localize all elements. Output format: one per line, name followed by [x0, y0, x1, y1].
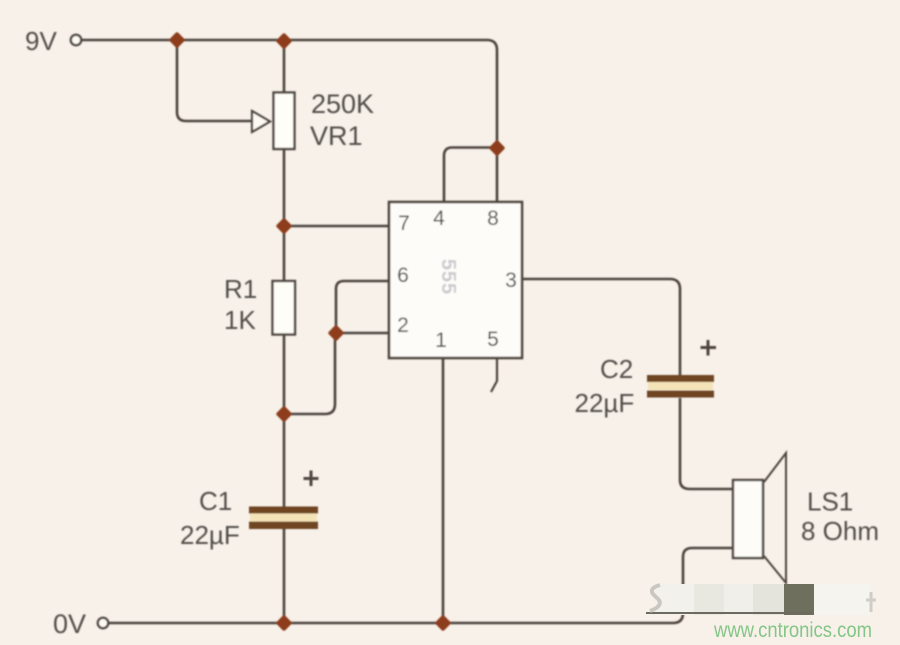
svg-text:1K: 1K — [224, 305, 256, 335]
svg-text:0V: 0V — [53, 609, 86, 639]
svg-text:7: 7 — [398, 212, 410, 235]
svg-text:5: 5 — [487, 328, 499, 351]
svg-text:9V: 9V — [25, 26, 57, 56]
svg-text:C2: C2 — [600, 354, 633, 384]
svg-text:VR1: VR1 — [310, 121, 363, 151]
svg-text:22µF: 22µF — [180, 520, 240, 550]
svg-text:8 Ohm: 8 Ohm — [801, 516, 879, 546]
svg-text:4: 4 — [433, 207, 445, 230]
svg-text:250K: 250K — [311, 89, 374, 119]
svg-text:1: 1 — [435, 329, 447, 352]
svg-text:R1: R1 — [224, 274, 257, 304]
svg-text:6: 6 — [397, 264, 409, 287]
svg-text:LS1: LS1 — [807, 487, 853, 517]
svg-text:3: 3 — [505, 269, 517, 292]
svg-text:www.cntronics.com: www.cntronics.com — [713, 618, 872, 642]
svg-text:8: 8 — [487, 207, 499, 230]
svg-text:555: 555 — [437, 259, 459, 295]
svg-text:2: 2 — [397, 314, 409, 337]
svg-text:22µF: 22µF — [575, 388, 635, 418]
svg-text:C1: C1 — [199, 486, 232, 516]
